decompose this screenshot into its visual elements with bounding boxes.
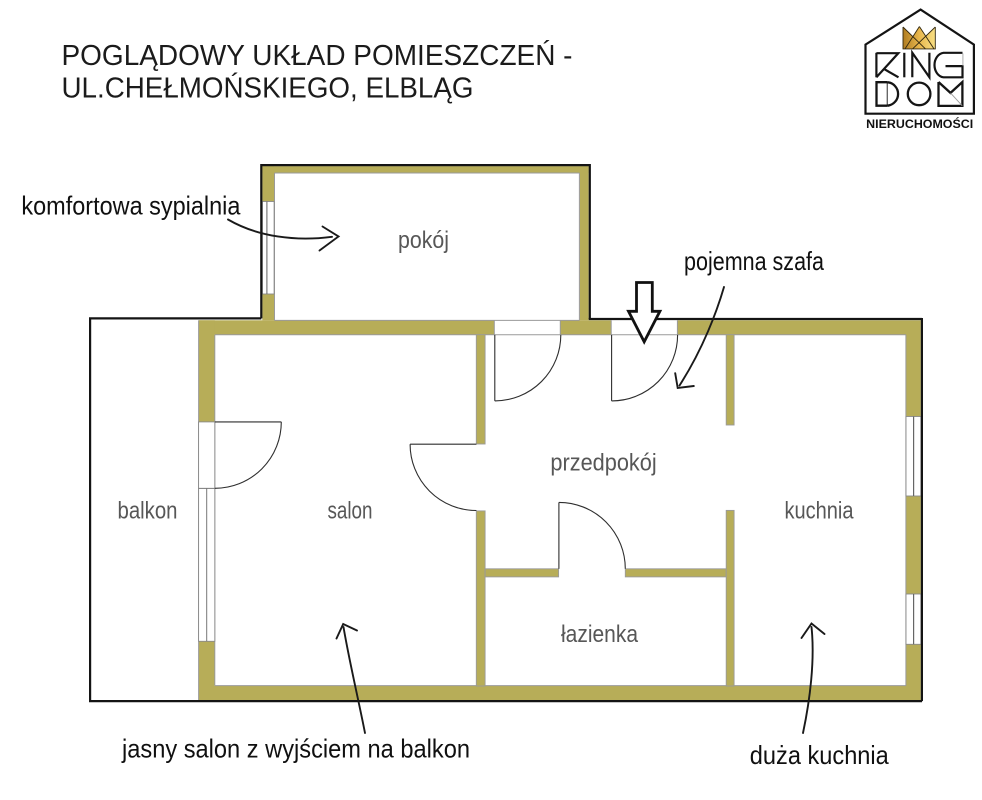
svg-text:balkon: balkon [118,499,178,525]
svg-text:jasny salon z wyjściem na balk: jasny salon z wyjściem na balkon [121,734,470,764]
svg-text:kuchnia: kuchnia [785,499,855,525]
svg-text:pokój: pokój [398,228,449,254]
svg-text:łazienka: łazienka [561,622,639,648]
svg-text:pojemna szafa: pojemna szafa [684,246,824,276]
svg-text:przedpokój: przedpokój [550,451,656,477]
svg-text:POGLĄDOWY UKŁAD POMIESZCZEŃ -: POGLĄDOWY UKŁAD POMIESZCZEŃ - [62,39,573,72]
svg-text:NIERUCHOMOŚCI: NIERUCHOMOŚCI [866,116,973,131]
svg-text:UL.CHEŁMOŃSKIEGO, ELBLĄG: UL.CHEŁMOŃSKIEGO, ELBLĄG [62,71,474,104]
svg-text:salon: salon [328,499,373,525]
svg-text:duża kuchnia: duża kuchnia [750,740,889,770]
svg-text:komfortowa sypialnia: komfortowa sypialnia [21,191,240,221]
